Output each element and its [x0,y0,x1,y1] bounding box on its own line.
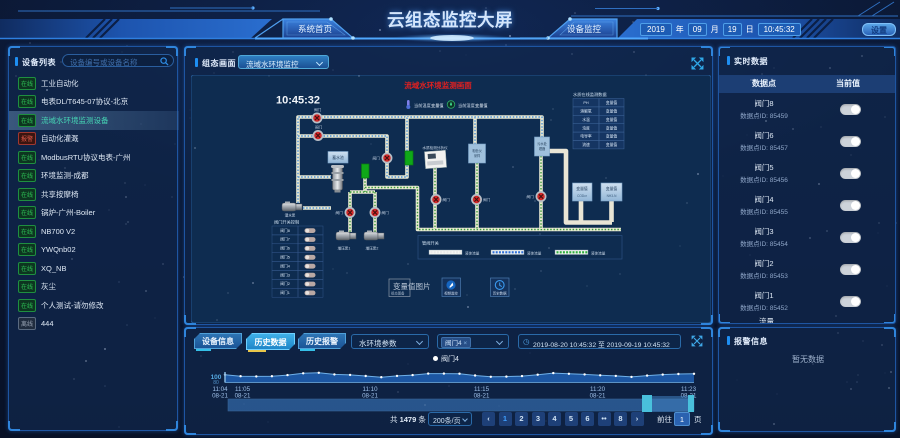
svg-text:08-21: 08-21 [212,393,228,400]
svg-text:80: 80 [213,380,219,386]
svg-text:水质检测分析仪: 水质检测分析仪 [422,145,448,150]
svg-text:变量值: 变量值 [606,117,618,122]
svg-text:污水处: 污水处 [537,141,547,146]
svg-text:变量值: 变量值 [475,102,488,109]
svg-text:阀门开关控制: 阀门开关控制 [274,219,299,226]
svg-text:阀门6: 阀门6 [280,246,290,251]
svg-text:增压泵1: 增压泵1 [338,246,351,251]
svg-text:变量值: 变量值 [576,186,588,191]
svg-text:变量值: 变量值 [431,102,444,109]
svg-text:液体流量: 液体流量 [527,251,542,256]
svg-text:阀门7: 阀门7 [280,237,290,242]
svg-text:蓄水池: 蓄水池 [332,155,344,160]
svg-text:10:45:32: 10:45:32 [276,95,320,107]
svg-text:阀门: 阀门 [382,210,390,215]
svg-text:阀门: 阀门 [443,197,451,202]
svg-text:变量值: 变量值 [606,186,618,191]
svg-text:阀门3: 阀门3 [280,272,290,277]
svg-text:增压泵2: 增压泵2 [366,246,379,251]
svg-text:视频监控: 视频监控 [444,291,458,296]
svg-text:管阀开关: 管阀开关 [422,240,439,247]
svg-text:阀门: 阀门 [373,156,381,161]
svg-text:08-21: 08-21 [474,393,490,400]
svg-text:阀门4: 阀门4 [280,263,290,268]
svg-text:08-21: 08-21 [590,393,606,400]
svg-text:PH: PH [583,101,589,105]
svg-text:08-21: 08-21 [235,393,251,400]
svg-text:电导率: 电导率 [580,134,592,139]
svg-text:NH3-N: NH3-N [607,194,617,198]
svg-text:变量值: 变量值 [606,125,618,130]
svg-text:阀门: 阀门 [315,125,323,130]
svg-text:相色仪: 相色仪 [472,148,482,153]
svg-text:阀门: 阀门 [527,194,535,199]
svg-text:理器: 理器 [539,146,546,151]
svg-text:流域水环境监测画面: 流域水环境监测画面 [404,80,472,90]
svg-text:液体流量: 液体流量 [591,251,606,256]
svg-text:水温: 水温 [582,117,590,122]
svg-text:溶解氧: 溶解氧 [580,109,592,114]
svg-text:阀门: 阀门 [483,197,491,202]
svg-text:浊度: 浊度 [582,125,590,130]
svg-text:08-21: 08-21 [362,393,378,400]
svg-text:阀门8: 阀门8 [280,228,290,233]
svg-text:变量值: 变量值 [606,100,618,105]
svg-text:阀门1: 阀门1 [280,290,290,295]
svg-text:历史数据: 历史数据 [493,291,507,296]
svg-text:组态图备: 组态图备 [391,291,405,296]
svg-text:阀门: 阀门 [314,107,322,112]
svg-text:当前温度: 当前温度 [414,102,432,109]
svg-text:液体流量: 液体流量 [465,251,480,256]
svg-text:当前湿度: 当前湿度 [458,102,476,109]
svg-text:潜水泵: 潜水泵 [285,213,296,218]
svg-text:变量值图片: 变量值图片 [393,281,431,291]
svg-text:变量值: 变量值 [606,142,618,147]
svg-text:变量值: 变量值 [606,134,618,139]
svg-text:CODcr: CODcr [577,194,588,198]
svg-text:阀门5: 阀门5 [280,255,290,260]
svg-text:流速: 流速 [582,142,590,147]
svg-text:阀门: 阀门 [336,210,344,215]
svg-text:水质在线监测数据: 水质在线监测数据 [573,91,607,98]
svg-text:变量值: 变量值 [606,109,618,114]
svg-text:阀门2: 阀门2 [280,281,290,286]
svg-text:采样: 采样 [474,153,481,158]
